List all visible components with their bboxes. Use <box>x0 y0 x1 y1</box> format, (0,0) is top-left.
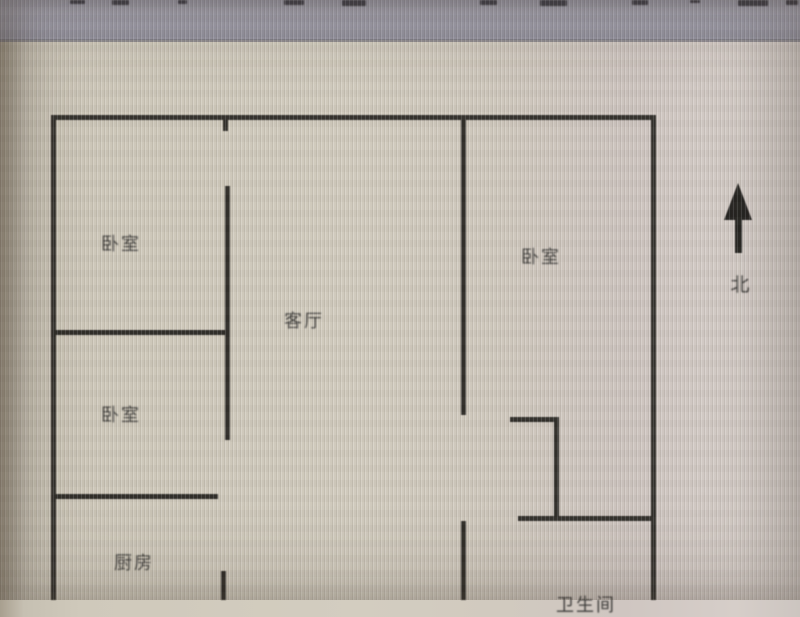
wall-bedrooms-divider <box>53 330 229 335</box>
wall-stub-top <box>223 117 228 131</box>
wall-outer-left <box>51 115 56 600</box>
photographed-screen: 卧室 卧室 卧室 客厅 厨房 卫生间 北 <box>0 0 800 600</box>
room-label-bedroom-right: 卧室 <box>521 243 561 269</box>
room-label-bedroom-top-left: 卧室 <box>101 230 141 256</box>
wall-kitchen-right-stub <box>221 571 226 600</box>
north-label: 北 <box>724 270 756 297</box>
wall-living-left <box>225 186 230 440</box>
wall-kitchen-top <box>51 494 218 499</box>
room-label-bedroom-mid-left: 卧室 <box>101 401 141 427</box>
wall-living-right <box>461 117 466 415</box>
floor-plan: 卧室 卧室 卧室 客厅 厨房 卫生间 北 <box>0 0 800 600</box>
room-label-kitchen: 厨房 <box>114 549 154 575</box>
wall-bathroom-left <box>461 521 466 600</box>
wall-bathroom-top <box>518 516 656 521</box>
room-label-bathroom: 卫生间 <box>556 591 616 617</box>
wall-duct-right <box>554 417 559 521</box>
wall-duct-top <box>510 417 559 422</box>
north-arrow-head <box>724 183 752 220</box>
wall-outer-top <box>53 115 656 120</box>
room-label-living-room: 客厅 <box>284 307 324 333</box>
north-arrow-icon <box>722 183 754 253</box>
wall-outer-right <box>651 115 656 600</box>
north-arrow-shaft <box>735 220 742 253</box>
